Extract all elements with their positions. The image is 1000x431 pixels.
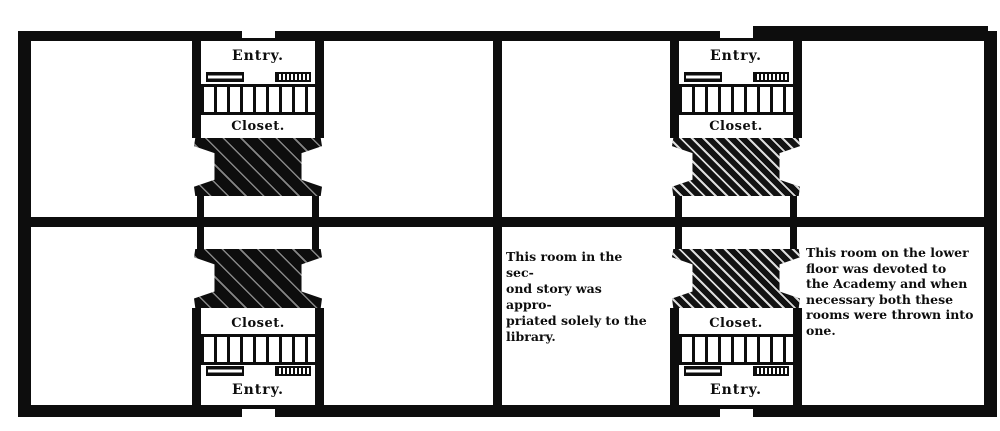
stair-landing-left — [684, 366, 722, 376]
stair-landing-left — [684, 72, 722, 82]
entry-room-label: Entry. — [201, 378, 315, 405]
door-opening-bottom-left — [242, 409, 275, 417]
stair-landing-left — [206, 72, 244, 82]
staircase — [679, 334, 793, 365]
chimney-recess-upper — [197, 196, 319, 217]
stair-hall-upper-right: Entry. Closet. — [670, 41, 802, 138]
floor-plan-right: Entry. Closet. Closet. Entry. — [670, 41, 802, 405]
stair-hall-upper-left: Entry. Closet. — [192, 41, 324, 138]
stair-hall-lower-right: Closet. Entry. — [670, 308, 802, 405]
chimney-stack-upper — [194, 138, 322, 196]
floor-plan-left: Entry. Closet. Closet. Entry. — [192, 41, 324, 405]
closet-room-label: Closet. — [679, 308, 793, 334]
chimney-recess-lower — [197, 227, 319, 249]
annotation-academy-note: This room on the lower floor was devoted… — [806, 245, 990, 338]
chimney-recess-upper — [675, 196, 797, 217]
door-opening-top-left — [242, 31, 275, 38]
entry-room-label: Entry. — [679, 41, 793, 71]
stair-hall-lower-left: Closet. Entry. — [192, 308, 324, 405]
closet-room-label: Closet. — [201, 115, 315, 138]
outer-wall-top-thickening — [750, 26, 988, 34]
stair-landing-row — [679, 71, 793, 84]
stair-landing-right — [275, 366, 311, 376]
closet-room-label: Closet. — [679, 115, 793, 138]
stair-landing-row — [201, 71, 315, 84]
entry-room-label: Entry. — [201, 41, 315, 71]
chimney-stack-upper — [672, 138, 800, 196]
stair-landing-left — [206, 366, 244, 376]
chimney-stack-lower — [194, 249, 322, 308]
scanned-floor-plan-figure: Entry. Closet. Closet. Entry. Entry. — [0, 0, 1000, 431]
staircase — [679, 84, 793, 115]
stair-landing-right — [275, 72, 311, 82]
staircase — [201, 84, 315, 115]
door-opening-bottom-right — [720, 409, 753, 417]
staircase — [201, 334, 315, 365]
outer-wall-bottom — [18, 405, 997, 417]
stair-landing-right — [753, 72, 789, 82]
mid-partition-wall — [18, 217, 997, 227]
stair-landing-row — [679, 365, 793, 378]
chimney-stack-lower — [672, 249, 800, 308]
chimney-recess-lower — [675, 227, 797, 249]
door-opening-top-right — [720, 26, 753, 38]
closet-room-label: Closet. — [201, 308, 315, 334]
entry-room-label: Entry. — [679, 378, 793, 405]
stair-landing-right — [753, 366, 789, 376]
stair-landing-row — [201, 365, 315, 378]
annotation-library-note: This room in the sec- ond story was appr… — [506, 249, 650, 345]
